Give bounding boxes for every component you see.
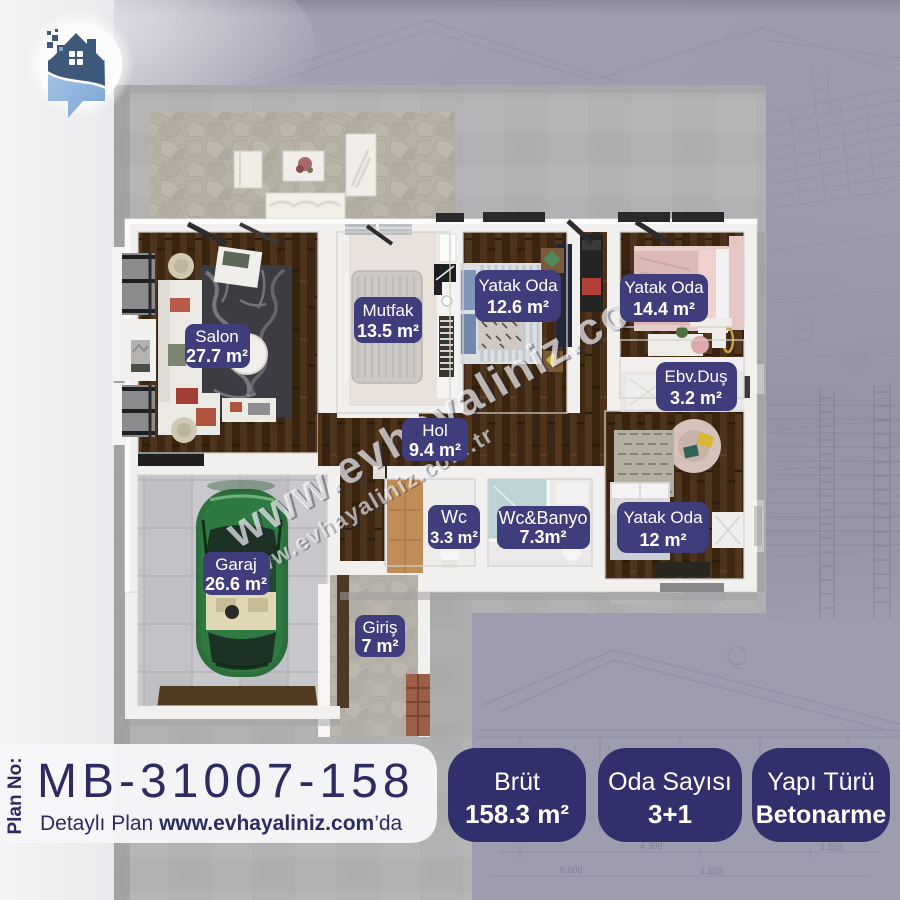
svg-text:3.3 m²: 3.3 m² <box>430 529 478 547</box>
svg-text:Plan No:: Plan No: <box>5 757 26 834</box>
svg-text:3+1: 3+1 <box>648 799 692 829</box>
svg-text:Brüt: Brüt <box>494 768 540 796</box>
svg-text:6.000: 6.000 <box>560 865 583 875</box>
svg-text:Yapı Türü: Yapı Türü <box>767 768 874 796</box>
svg-text:27.7 m²: 27.7 m² <box>186 346 248 366</box>
svg-text:Giriş: Giriş <box>363 618 398 637</box>
svg-text:MB-31007-158: MB-31007-158 <box>37 755 415 808</box>
svg-text:Yatak Oda: Yatak Oda <box>623 508 703 527</box>
svg-text:Detaylı Plan www.evhayaliniz.c: Detaylı Plan www.evhayaliniz.com’da <box>40 812 403 835</box>
svg-text:Ebv.Duş: Ebv.Duş <box>665 367 728 386</box>
svg-text:Hol: Hol <box>422 421 448 440</box>
svg-text:Mutfak: Mutfak <box>362 301 414 320</box>
svg-text:Salon: Salon <box>195 327 238 346</box>
svg-text:Wc: Wc <box>441 507 467 527</box>
svg-text:3.2 m²: 3.2 m² <box>670 388 722 408</box>
svg-text:7.3m²: 7.3m² <box>519 527 566 547</box>
svg-text:Yatak Oda: Yatak Oda <box>478 276 558 295</box>
svg-text:1.150: 1.150 <box>820 842 843 852</box>
svg-text:1.150: 1.150 <box>700 866 723 876</box>
svg-text:Oda Sayısı: Oda Sayısı <box>608 768 732 796</box>
svg-text:9.4 m²: 9.4 m² <box>409 440 461 460</box>
svg-text:4.300: 4.300 <box>640 841 663 851</box>
svg-text:Yatak Oda: Yatak Oda <box>624 278 704 297</box>
svg-text:14.4 m²: 14.4 m² <box>633 299 695 319</box>
svg-text:Wc&Banyo: Wc&Banyo <box>498 508 587 528</box>
svg-text:Garaj: Garaj <box>215 555 257 574</box>
svg-text:13.5 m²: 13.5 m² <box>357 321 419 341</box>
svg-text:26.6 m²: 26.6 m² <box>205 574 267 594</box>
svg-text:12.6 m²: 12.6 m² <box>487 297 549 317</box>
svg-text:12 m²: 12 m² <box>639 530 686 550</box>
svg-text:Betonarme: Betonarme <box>756 801 887 829</box>
svg-text:7 m²: 7 m² <box>361 636 398 656</box>
svg-text:158.3 m²: 158.3 m² <box>465 799 569 829</box>
